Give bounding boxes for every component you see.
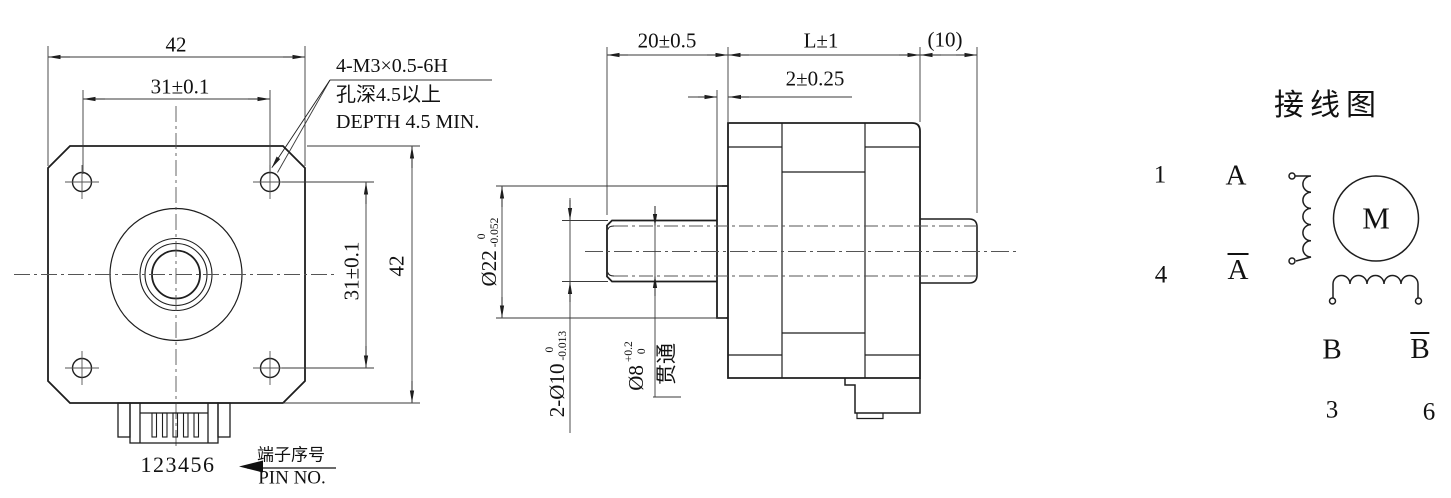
rear-shaft [920, 219, 977, 283]
phase-b-bar-text: B [1410, 332, 1429, 364]
front-shaft [607, 221, 717, 282]
dim-hole-pitch-top: 31±0.1 [151, 77, 210, 98]
front-connector [118, 403, 230, 443]
wiring-title: 接线图 [1274, 91, 1382, 121]
side-connector [845, 378, 920, 413]
terminal-4 [1289, 258, 1295, 264]
wiring-diagram [1289, 173, 1422, 304]
wiring-phase-b-bar: B [1410, 332, 1429, 364]
bore-through-note: 贯通 [657, 343, 678, 385]
motor-body-outline [728, 123, 920, 378]
thread-callout-line1: 4-M3×0.5-6H [336, 56, 448, 76]
phase-a-coil [1295, 176, 1311, 261]
body-section-lines [728, 123, 920, 378]
engineering-drawing-canvas: 42 31±0.1 4-M3×0.5-6H 孔深4.5以上 DEPTH 4.5 … [0, 0, 1451, 498]
dim-shaft-dia: 2-Ø10 0-0.013 [544, 331, 570, 417]
dim-height-right: 42 [387, 256, 408, 277]
dim-bore-dia-lower: 0 [636, 348, 649, 362]
front-centerlines [14, 106, 338, 450]
wiring-phase-a-bar: A [1228, 253, 1249, 285]
terminal-3 [1330, 298, 1336, 304]
dim-bore-dia: Ø8 +0.20 [623, 341, 649, 391]
bore-lines [614, 226, 977, 276]
terminal-1 [1289, 173, 1295, 179]
dim-pilot-height: 2±0.25 [786, 69, 845, 90]
dim-bore-dia-main: Ø8 [626, 365, 647, 391]
front-dimension-arrows [49, 57, 412, 402]
wiring-phase-a: A [1226, 162, 1247, 191]
dim-rear-shaft-length: (10) [928, 30, 963, 51]
dim-body-length: L±1 [804, 31, 839, 52]
pilot-boss [717, 186, 728, 318]
front-view [14, 46, 492, 473]
pin-label-cn: 端子序号 [257, 447, 325, 464]
dim-pilot-dia: Ø22 0-0.052 [476, 218, 502, 287]
wiring-pin-4: 4 [1155, 263, 1168, 288]
pin-numbers: 123456 [141, 454, 216, 476]
drawing-linework [0, 0, 1451, 498]
dim-shaft-dia-lower: -0.013 [557, 331, 570, 361]
phase-b-coil [1333, 276, 1418, 299]
wiring-pin-6: 6 [1423, 400, 1436, 425]
thread-callout-line3: DEPTH 4.5 MIN. [336, 112, 479, 132]
pin-label-en: PIN NO. [258, 469, 326, 488]
dim-pilot-dia-main: Ø22 [479, 250, 500, 286]
dim-shaft-dia-main: 2-Ø10 [547, 364, 568, 418]
dim-shaft-dia-upper: 0 [544, 347, 557, 361]
dim-pilot-dia-upper: 0 [476, 234, 489, 248]
phase-a-bar-text: A [1228, 253, 1249, 285]
bore-lead-in [608, 226, 614, 276]
dim-bore-dia-upper: +0.2 [623, 341, 636, 362]
dim-pilot-dia-lower: -0.052 [489, 218, 502, 248]
wiring-phase-b: B [1322, 336, 1341, 365]
motor-label: M [1362, 203, 1390, 234]
side-view [496, 47, 1020, 433]
side-connector-foot [857, 413, 883, 419]
dim-hole-pitch-right: 31±0.1 [342, 242, 363, 301]
wiring-pin-1: 1 [1154, 163, 1167, 188]
wiring-pin-3: 3 [1326, 398, 1339, 423]
dim-width-top: 42 [166, 35, 187, 56]
connector-pins [152, 413, 199, 437]
dim-front-shaft-length: 20±0.5 [638, 31, 697, 52]
terminal-6 [1416, 298, 1422, 304]
thread-callout-line2: 孔深4.5以上 [336, 85, 441, 105]
